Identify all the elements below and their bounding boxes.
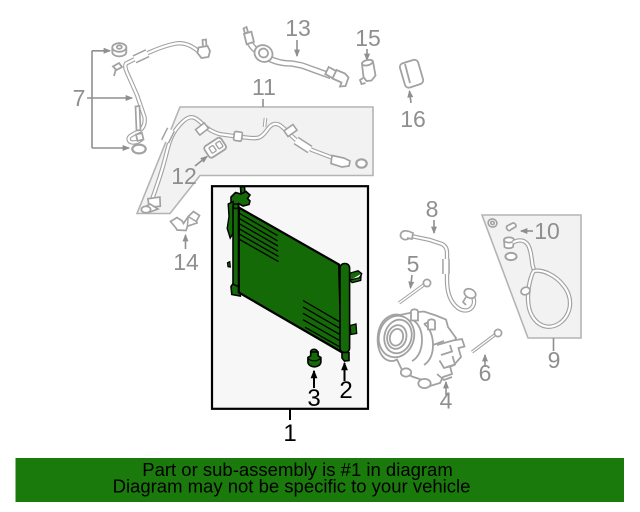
svg-text:14: 14 <box>173 249 199 275</box>
svg-text:8: 8 <box>426 196 439 222</box>
svg-text:13: 13 <box>285 15 311 41</box>
svg-text:9: 9 <box>548 347 561 373</box>
svg-text:1: 1 <box>283 420 296 447</box>
svg-text:3: 3 <box>307 385 320 412</box>
svg-text:15: 15 <box>355 25 381 51</box>
svg-text:4: 4 <box>440 388 453 414</box>
svg-text:2: 2 <box>339 377 352 404</box>
svg-text:10: 10 <box>534 218 560 244</box>
svg-text:16: 16 <box>400 106 426 132</box>
svg-text:7: 7 <box>73 85 86 111</box>
svg-text:12: 12 <box>171 163 197 189</box>
svg-text:5: 5 <box>407 251 420 277</box>
svg-text:Diagram may not be specific to: Diagram may not be specific to your vehi… <box>113 475 471 496</box>
svg-text:11: 11 <box>252 74 276 100</box>
